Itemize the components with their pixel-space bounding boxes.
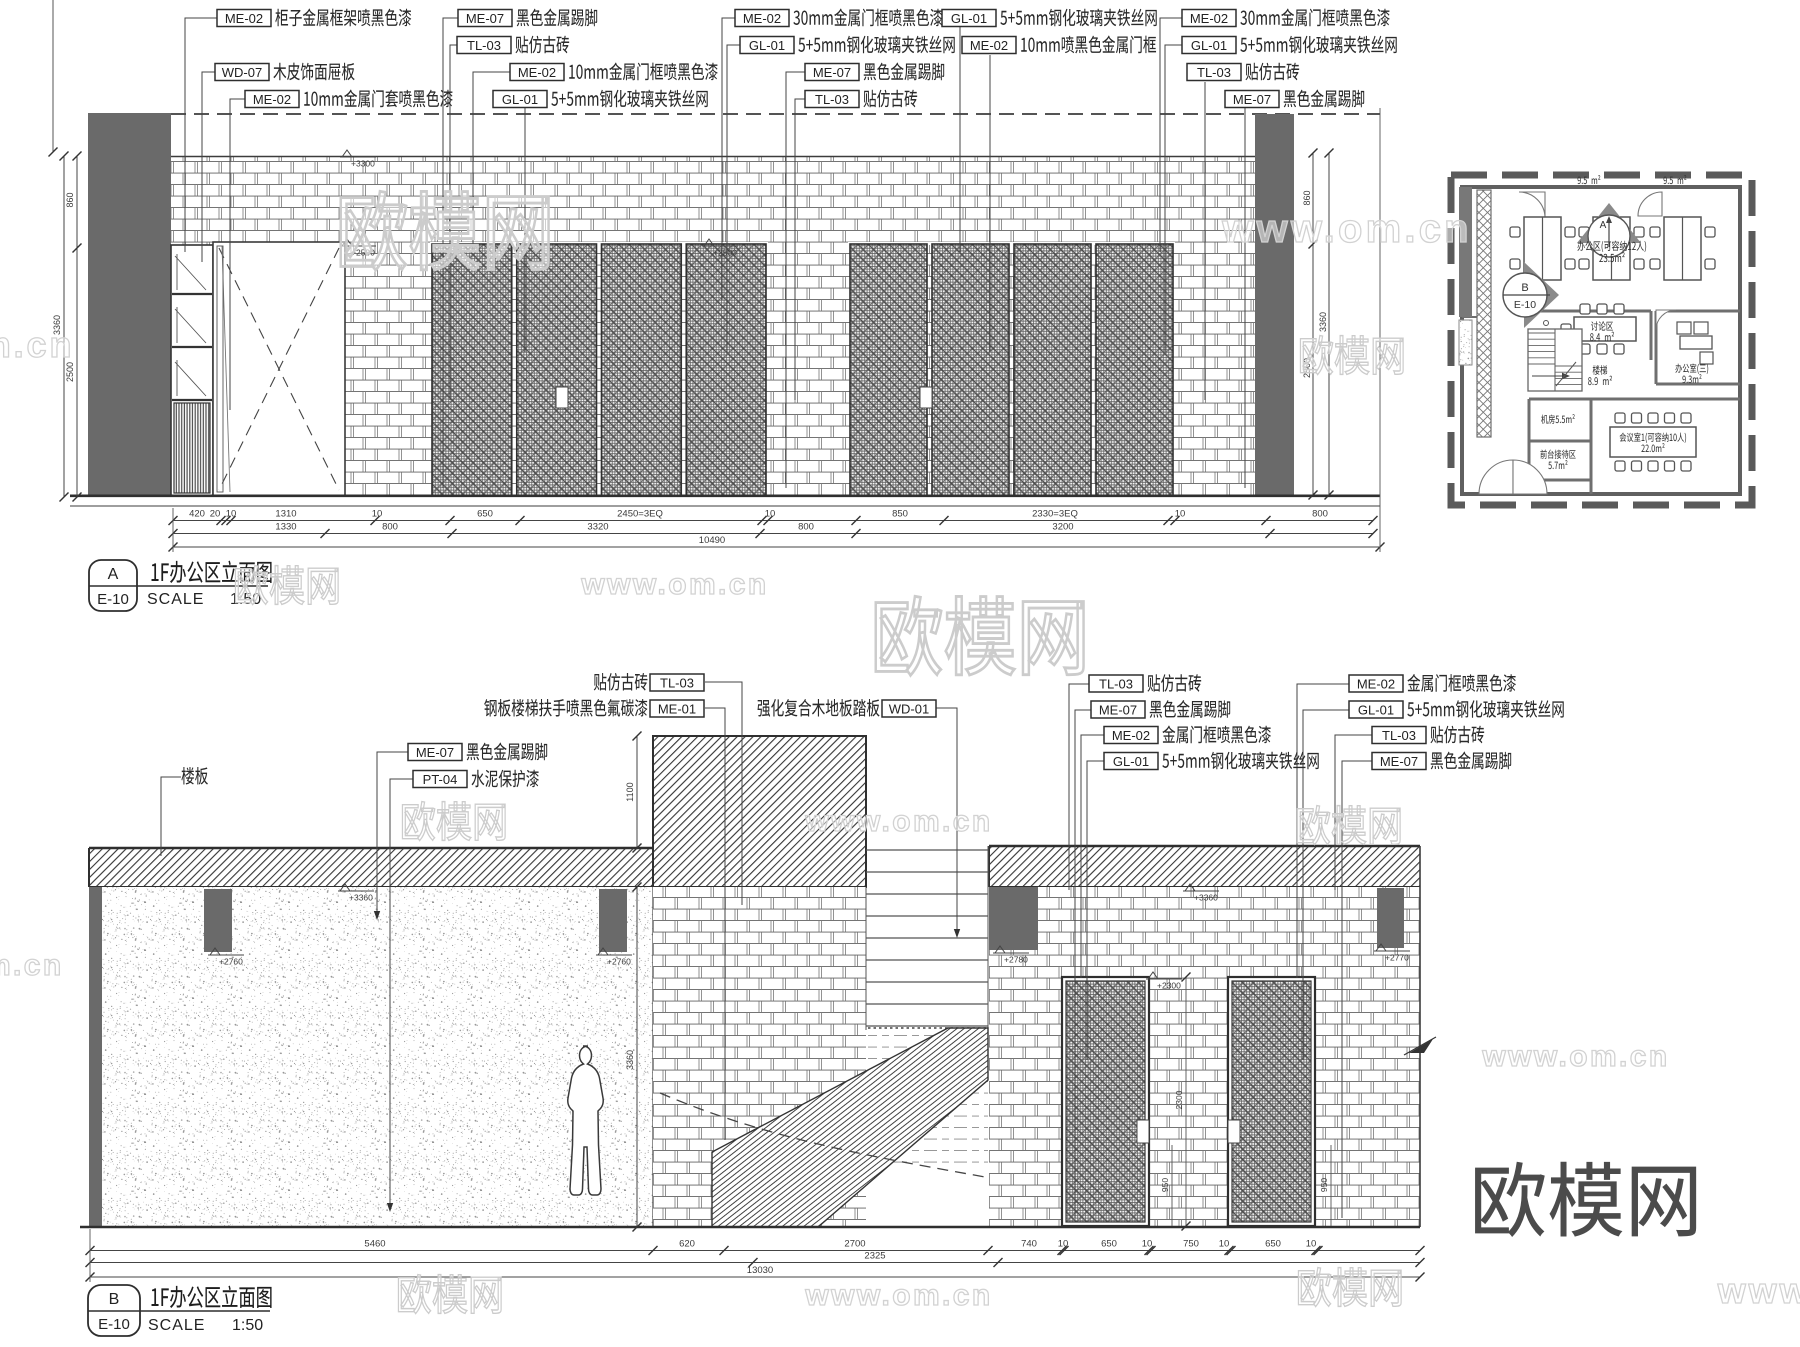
svg-text:+2760: +2760 (607, 957, 631, 967)
svg-text:ME-02: ME-02 (1112, 728, 1150, 743)
svg-text:2700: 2700 (844, 1239, 865, 1250)
svg-text:GL-01: GL-01 (1358, 703, 1394, 718)
svg-text:ME-07: ME-07 (466, 11, 504, 26)
svg-text:A: A (1600, 220, 1607, 231)
svg-text:www.om.cn: www.om.cn (804, 805, 992, 838)
svg-text:www.om.cn: www.om.cn (580, 568, 768, 601)
svg-text:+2760: +2760 (219, 957, 243, 967)
svg-text:B: B (109, 1291, 120, 1308)
svg-text:www.om.cn: www.om.cn (1221, 207, 1472, 251)
svg-text:1330: 1330 (275, 522, 296, 533)
svg-text:TL-03: TL-03 (815, 92, 849, 107)
svg-text:WD-07: WD-07 (222, 65, 262, 80)
svg-text:TL-03: TL-03 (467, 38, 501, 53)
svg-text:TL-03: TL-03 (1197, 65, 1231, 80)
svg-text:WD-01: WD-01 (889, 702, 929, 717)
svg-text:950: 950 (1160, 1178, 1170, 1192)
svg-text:+2780: +2780 (1004, 955, 1028, 965)
svg-text:www.om.cn: www.om.cn (0, 324, 74, 365)
svg-text:800: 800 (798, 522, 814, 533)
svg-text:800: 800 (382, 522, 398, 533)
svg-text:ME-02: ME-02 (225, 11, 263, 26)
svg-text:PT-04: PT-04 (423, 772, 458, 787)
svg-text:10: 10 (1175, 509, 1186, 520)
svg-text:ME-02: ME-02 (518, 65, 556, 80)
svg-text:750: 750 (1183, 1239, 1199, 1250)
svg-text:3200: 3200 (1052, 522, 1073, 533)
svg-text:ME-01: ME-01 (658, 702, 696, 717)
svg-text:10490: 10490 (699, 535, 725, 546)
svg-text:10: 10 (765, 509, 776, 520)
svg-text:www.om.cn: www.om.cn (1481, 1040, 1669, 1073)
svg-text:TL-03: TL-03 (1099, 677, 1133, 692)
svg-text:ME-02: ME-02 (253, 92, 291, 107)
svg-text:20: 20 (210, 509, 221, 520)
svg-text:B: B (1521, 282, 1528, 294)
svg-text:SCALE: SCALE (148, 1317, 205, 1334)
svg-text:GL-01: GL-01 (749, 38, 785, 53)
svg-text:+2300: +2300 (1157, 981, 1181, 991)
svg-text:ME-07: ME-07 (1099, 703, 1137, 718)
svg-text:+3300: +3300 (351, 159, 375, 169)
svg-text:10: 10 (1142, 1239, 1153, 1250)
svg-text:860: 860 (1302, 190, 1312, 205)
svg-text:+2500: +2500 (713, 248, 737, 258)
svg-text:10: 10 (372, 509, 383, 520)
svg-text:10: 10 (1306, 1239, 1317, 1250)
svg-text:2450=3EQ: 2450=3EQ (617, 509, 663, 520)
svg-text:A: A (108, 566, 119, 583)
svg-text:+3360: +3360 (349, 893, 373, 903)
svg-text:TL-03: TL-03 (660, 676, 694, 691)
svg-text:GL-01: GL-01 (502, 92, 538, 107)
svg-text:10: 10 (1219, 1239, 1230, 1250)
svg-text:+3360: +3360 (1194, 893, 1218, 903)
svg-text:E-10: E-10 (97, 591, 129, 608)
svg-text:650: 650 (1265, 1239, 1281, 1250)
svg-text:ME-07: ME-07 (813, 65, 851, 80)
svg-text:650: 650 (1101, 1239, 1117, 1250)
svg-text:ME-02: ME-02 (743, 11, 781, 26)
svg-text:www.om.cn: www.om.cn (1717, 1270, 1800, 1311)
svg-text:2330=3EQ: 2330=3EQ (1032, 509, 1078, 520)
svg-text:GL-01: GL-01 (951, 11, 987, 26)
svg-text:www.om.cn: www.om.cn (804, 1279, 992, 1312)
svg-text:10: 10 (226, 509, 237, 520)
svg-text:860: 860 (65, 192, 75, 207)
svg-text:5460: 5460 (364, 1239, 385, 1250)
svg-text:ME-07: ME-07 (1233, 92, 1271, 107)
svg-text:ME-07: ME-07 (1380, 754, 1418, 769)
svg-text:www.om.cn: www.om.cn (0, 949, 64, 982)
svg-text:+2770: +2770 (1385, 953, 1409, 963)
svg-text:800: 800 (1312, 509, 1328, 520)
svg-text:SCALE: SCALE (147, 591, 204, 608)
svg-text:620: 620 (679, 1239, 695, 1250)
svg-text:850: 850 (892, 509, 908, 520)
svg-text:GL-01: GL-01 (1113, 754, 1149, 769)
svg-text:3360: 3360 (625, 1050, 635, 1070)
svg-text:E-10: E-10 (98, 1316, 130, 1333)
svg-text:10: 10 (1058, 1239, 1069, 1250)
svg-text:1:50: 1:50 (232, 1317, 263, 1334)
svg-text:1310: 1310 (275, 509, 296, 520)
svg-text:3360: 3360 (1318, 312, 1328, 332)
svg-text:1100: 1100 (625, 782, 635, 801)
svg-text:950: 950 (1319, 1178, 1329, 1192)
svg-text:740: 740 (1021, 1239, 1037, 1250)
svg-text:13030: 13030 (747, 1265, 773, 1276)
svg-text:TL-03: TL-03 (1382, 728, 1416, 743)
svg-text:ME-02: ME-02 (1357, 677, 1395, 692)
svg-text:2325: 2325 (864, 1251, 885, 1262)
svg-text:GL-01: GL-01 (1191, 38, 1227, 53)
svg-text:ME-02: ME-02 (1190, 11, 1228, 26)
svg-text:2300: 2300 (1174, 1090, 1184, 1109)
svg-text:420: 420 (189, 509, 205, 520)
svg-text:3320: 3320 (587, 522, 608, 533)
svg-text:650: 650 (477, 509, 493, 520)
svg-text:ME-02: ME-02 (970, 38, 1008, 53)
svg-text:ME-07: ME-07 (416, 745, 454, 760)
svg-text:E-10: E-10 (1514, 299, 1536, 311)
